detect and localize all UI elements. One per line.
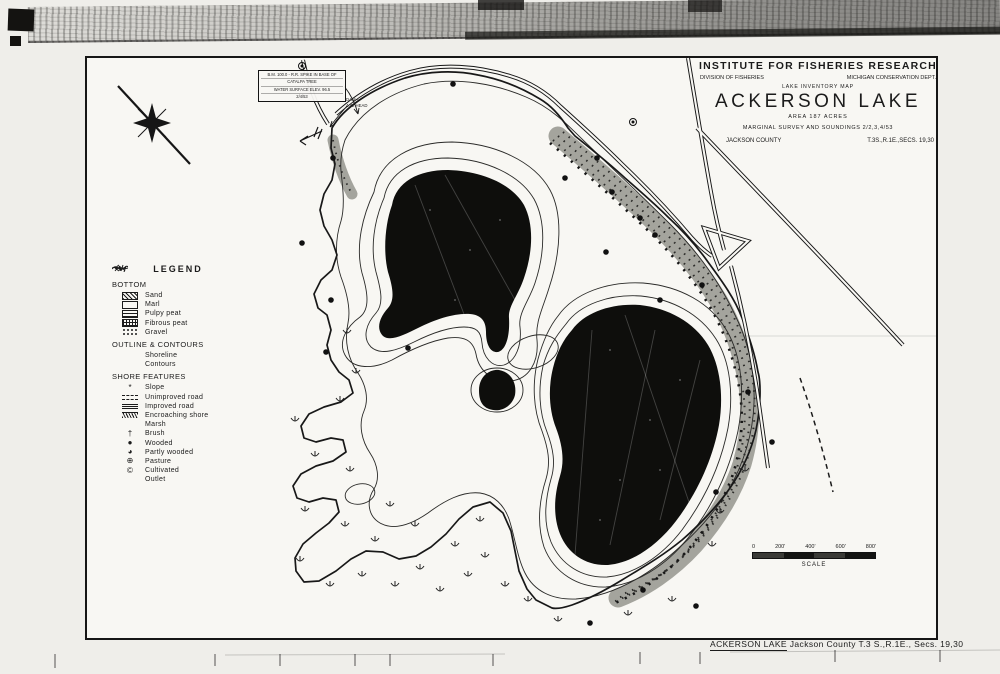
legend: LEGEND BOTTOM Sand Marl Pulpy peat Fibro…	[112, 264, 244, 484]
contour-line-icon	[122, 361, 138, 369]
scale-label: 200'	[775, 544, 785, 550]
cultivated-ring-icon: ©	[122, 467, 138, 475]
legend-row: ⊕ Pasture	[112, 457, 244, 466]
scale-segment	[753, 553, 784, 558]
sand-swatch-icon	[122, 292, 138, 300]
scan-blob	[10, 36, 21, 46]
partly-wooded-dot-icon: ◕	[122, 448, 138, 456]
legend-item-label: Marsh	[145, 421, 166, 428]
legend-row: Unimproved road	[112, 393, 244, 402]
legend-item-label: Cultivated	[145, 467, 179, 474]
shoreline-line-icon	[122, 352, 138, 360]
legend-row: Shoreline	[112, 351, 244, 360]
legend-section-heading: SHORE FEATURES	[112, 372, 244, 381]
department-name: MICHIGAN CONSERVATION DEPT.	[847, 75, 936, 81]
scale-label: 400'	[805, 544, 815, 550]
footer-caption: ACKERSON LAKE Jackson County T.3 S.,R.1E…	[710, 639, 963, 649]
map-type: LAKE INVENTORY MAP	[698, 84, 938, 90]
scale-bar: 0 200' 400' 600' 800' SCALE	[752, 544, 876, 568]
encroaching-shore-icon	[122, 412, 138, 418]
scale-caption: SCALE	[752, 562, 876, 568]
legend-item-label: Fibrous peat	[145, 320, 188, 327]
legend-item-label: Shoreline	[145, 352, 177, 359]
benchmark-line: 2/4/53	[261, 94, 343, 100]
scale-label: 600'	[836, 544, 846, 550]
scan-blob	[478, 0, 524, 10]
institute-name: INSTITUTE FOR FISHERIES RESEARCH	[698, 60, 938, 72]
legend-item-label: Pulpy peat	[145, 310, 181, 317]
footer-location: Jackson County T.3 S.,R.1E., Secs. 19,30	[787, 639, 963, 649]
brush-mark-icon: †	[122, 430, 138, 438]
legend-item-label: Pasture	[145, 458, 171, 465]
scale-segment	[784, 553, 815, 558]
benchmark-line: WATER SURFACE ELEV. 96.5	[261, 87, 343, 94]
legend-section-heading: BOTTOM	[112, 280, 244, 289]
ruler-ticks	[55, 650, 940, 668]
wooded-dot-icon: ●	[122, 439, 138, 447]
ruler-lines	[225, 650, 1000, 655]
legend-section-heading: OUTLINE & CONTOURS	[112, 340, 244, 349]
township-range: T.3S.,R.1E.,SECS. 19,30	[867, 138, 934, 144]
lake-area: AREA 187 ACRES	[698, 114, 938, 120]
legend-item-label: Marl	[145, 301, 160, 308]
title-block: INSTITUTE FOR FISHERIES RESEARCH DIVISIO…	[698, 60, 938, 144]
legend-item-label: Brush	[145, 430, 165, 437]
fibrous-peat-swatch-icon	[122, 319, 138, 327]
legend-row: Outlet	[112, 475, 244, 484]
county-name: JACKSON COUNTY	[726, 138, 781, 144]
lake-name-title: ACKERSON LAKE	[698, 91, 938, 113]
benchmark-line: CATALPA TREE	[261, 79, 343, 86]
scan-blob	[8, 9, 35, 32]
unimproved-road-icon	[122, 395, 138, 400]
scale-bar-labels: 0 200' 400' 600' 800'	[752, 544, 876, 550]
legend-row: © Cultivated	[112, 466, 244, 475]
legend-row: Improved road	[112, 402, 244, 411]
scale-label: 0	[752, 544, 755, 550]
benchmark-line: B.M. 100.0 - R.R. SPIKE IN BASE OF	[261, 72, 343, 79]
pasture-ring-icon: ⊕	[122, 457, 138, 465]
legend-item-label: Encroaching shore	[145, 412, 208, 419]
scale-label: 800'	[866, 544, 876, 550]
legend-item-label: Improved road	[145, 403, 194, 410]
footer-lake-name: ACKERSON LAKE	[710, 639, 787, 651]
legend-row: Pulpy peat	[112, 309, 244, 318]
legend-title: LEGEND	[112, 264, 244, 274]
benchmark-note: B.M. 100.0 - R.R. SPIKE IN BASE OF CATAL…	[258, 70, 346, 102]
legend-item-label: Gravel	[145, 329, 167, 336]
scale-bar-graphic	[752, 552, 876, 559]
survey-note: MARGINAL SURVEY AND SOUNDINGS 2/2,3,4/53	[698, 125, 938, 131]
legend-row: * Slope	[112, 383, 244, 392]
scale-segment	[845, 553, 876, 558]
marl-swatch-icon	[122, 301, 138, 309]
scan-blob	[688, 0, 722, 12]
pulpy-peat-swatch-icon	[122, 310, 138, 318]
legend-item-label: Wooded	[145, 440, 173, 447]
legend-row: Contours	[112, 360, 244, 369]
dam-note-line: 4.42 HEAD	[346, 103, 368, 109]
legend-row: Sand	[112, 291, 244, 300]
gravel-swatch-icon	[122, 328, 138, 336]
division-name: DIVISION OF FISHERIES	[700, 75, 764, 81]
legend-item-label: Outlet	[145, 476, 165, 483]
outlet-arrow-icon	[122, 476, 138, 484]
legend-item-label: Slope	[145, 384, 164, 391]
scale-segment	[814, 553, 845, 558]
legend-row: Marsh	[112, 420, 244, 429]
marsh-tuft-icon	[122, 421, 138, 429]
scanned-lake-map-page: INSTITUTE FOR FISHERIES RESEARCH DIVISIO…	[0, 0, 1000, 674]
legend-row: Gravel	[112, 328, 244, 337]
slope-mark-icon: *	[122, 384, 138, 392]
improved-road-icon	[122, 404, 138, 409]
legend-item-label: Contours	[145, 361, 176, 368]
legend-item-label: Unimproved road	[145, 394, 203, 401]
legend-row: Marl	[112, 300, 244, 309]
legend-row: Fibrous peat	[112, 319, 244, 328]
legend-item-label: Sand	[145, 292, 163, 299]
legend-item-label: Partly wooded	[145, 449, 193, 456]
dam-note: DAM— 4.42 HEAD	[346, 97, 368, 109]
legend-row: Encroaching shore	[112, 411, 244, 420]
deep-hole-fill	[479, 370, 515, 410]
